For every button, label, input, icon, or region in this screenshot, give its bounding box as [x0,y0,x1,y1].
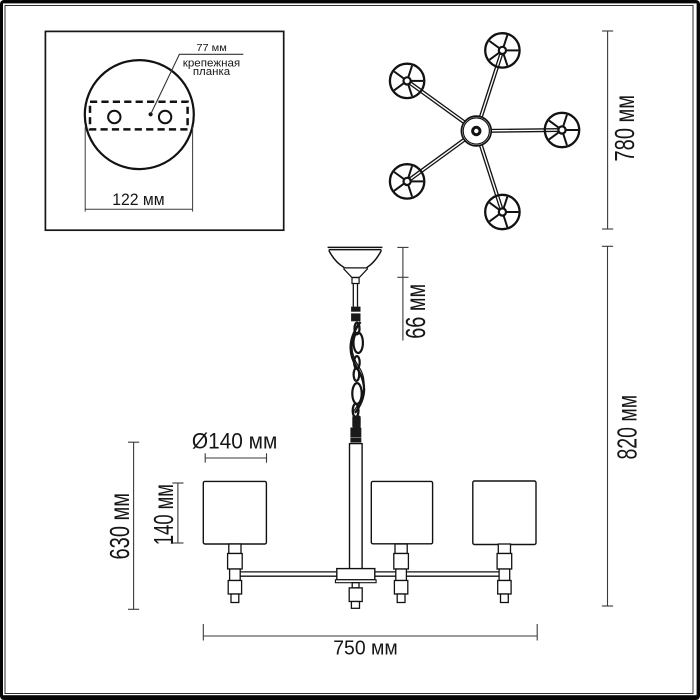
svg-text:Ø140 мм: Ø140 мм [192,429,278,454]
svg-text:750 мм: 750 мм [333,638,398,660]
svg-text:820 мм: 820 мм [612,395,643,460]
svg-text:122 мм: 122 мм [112,191,164,209]
svg-text:66 мм: 66 мм [400,284,431,339]
svg-text:планка: планка [193,66,231,78]
svg-text:140 мм: 140 мм [148,484,179,545]
svg-text:630 мм: 630 мм [104,493,135,560]
svg-text:780 мм: 780 мм [609,95,640,162]
svg-text:77 мм: 77 мм [196,42,227,54]
